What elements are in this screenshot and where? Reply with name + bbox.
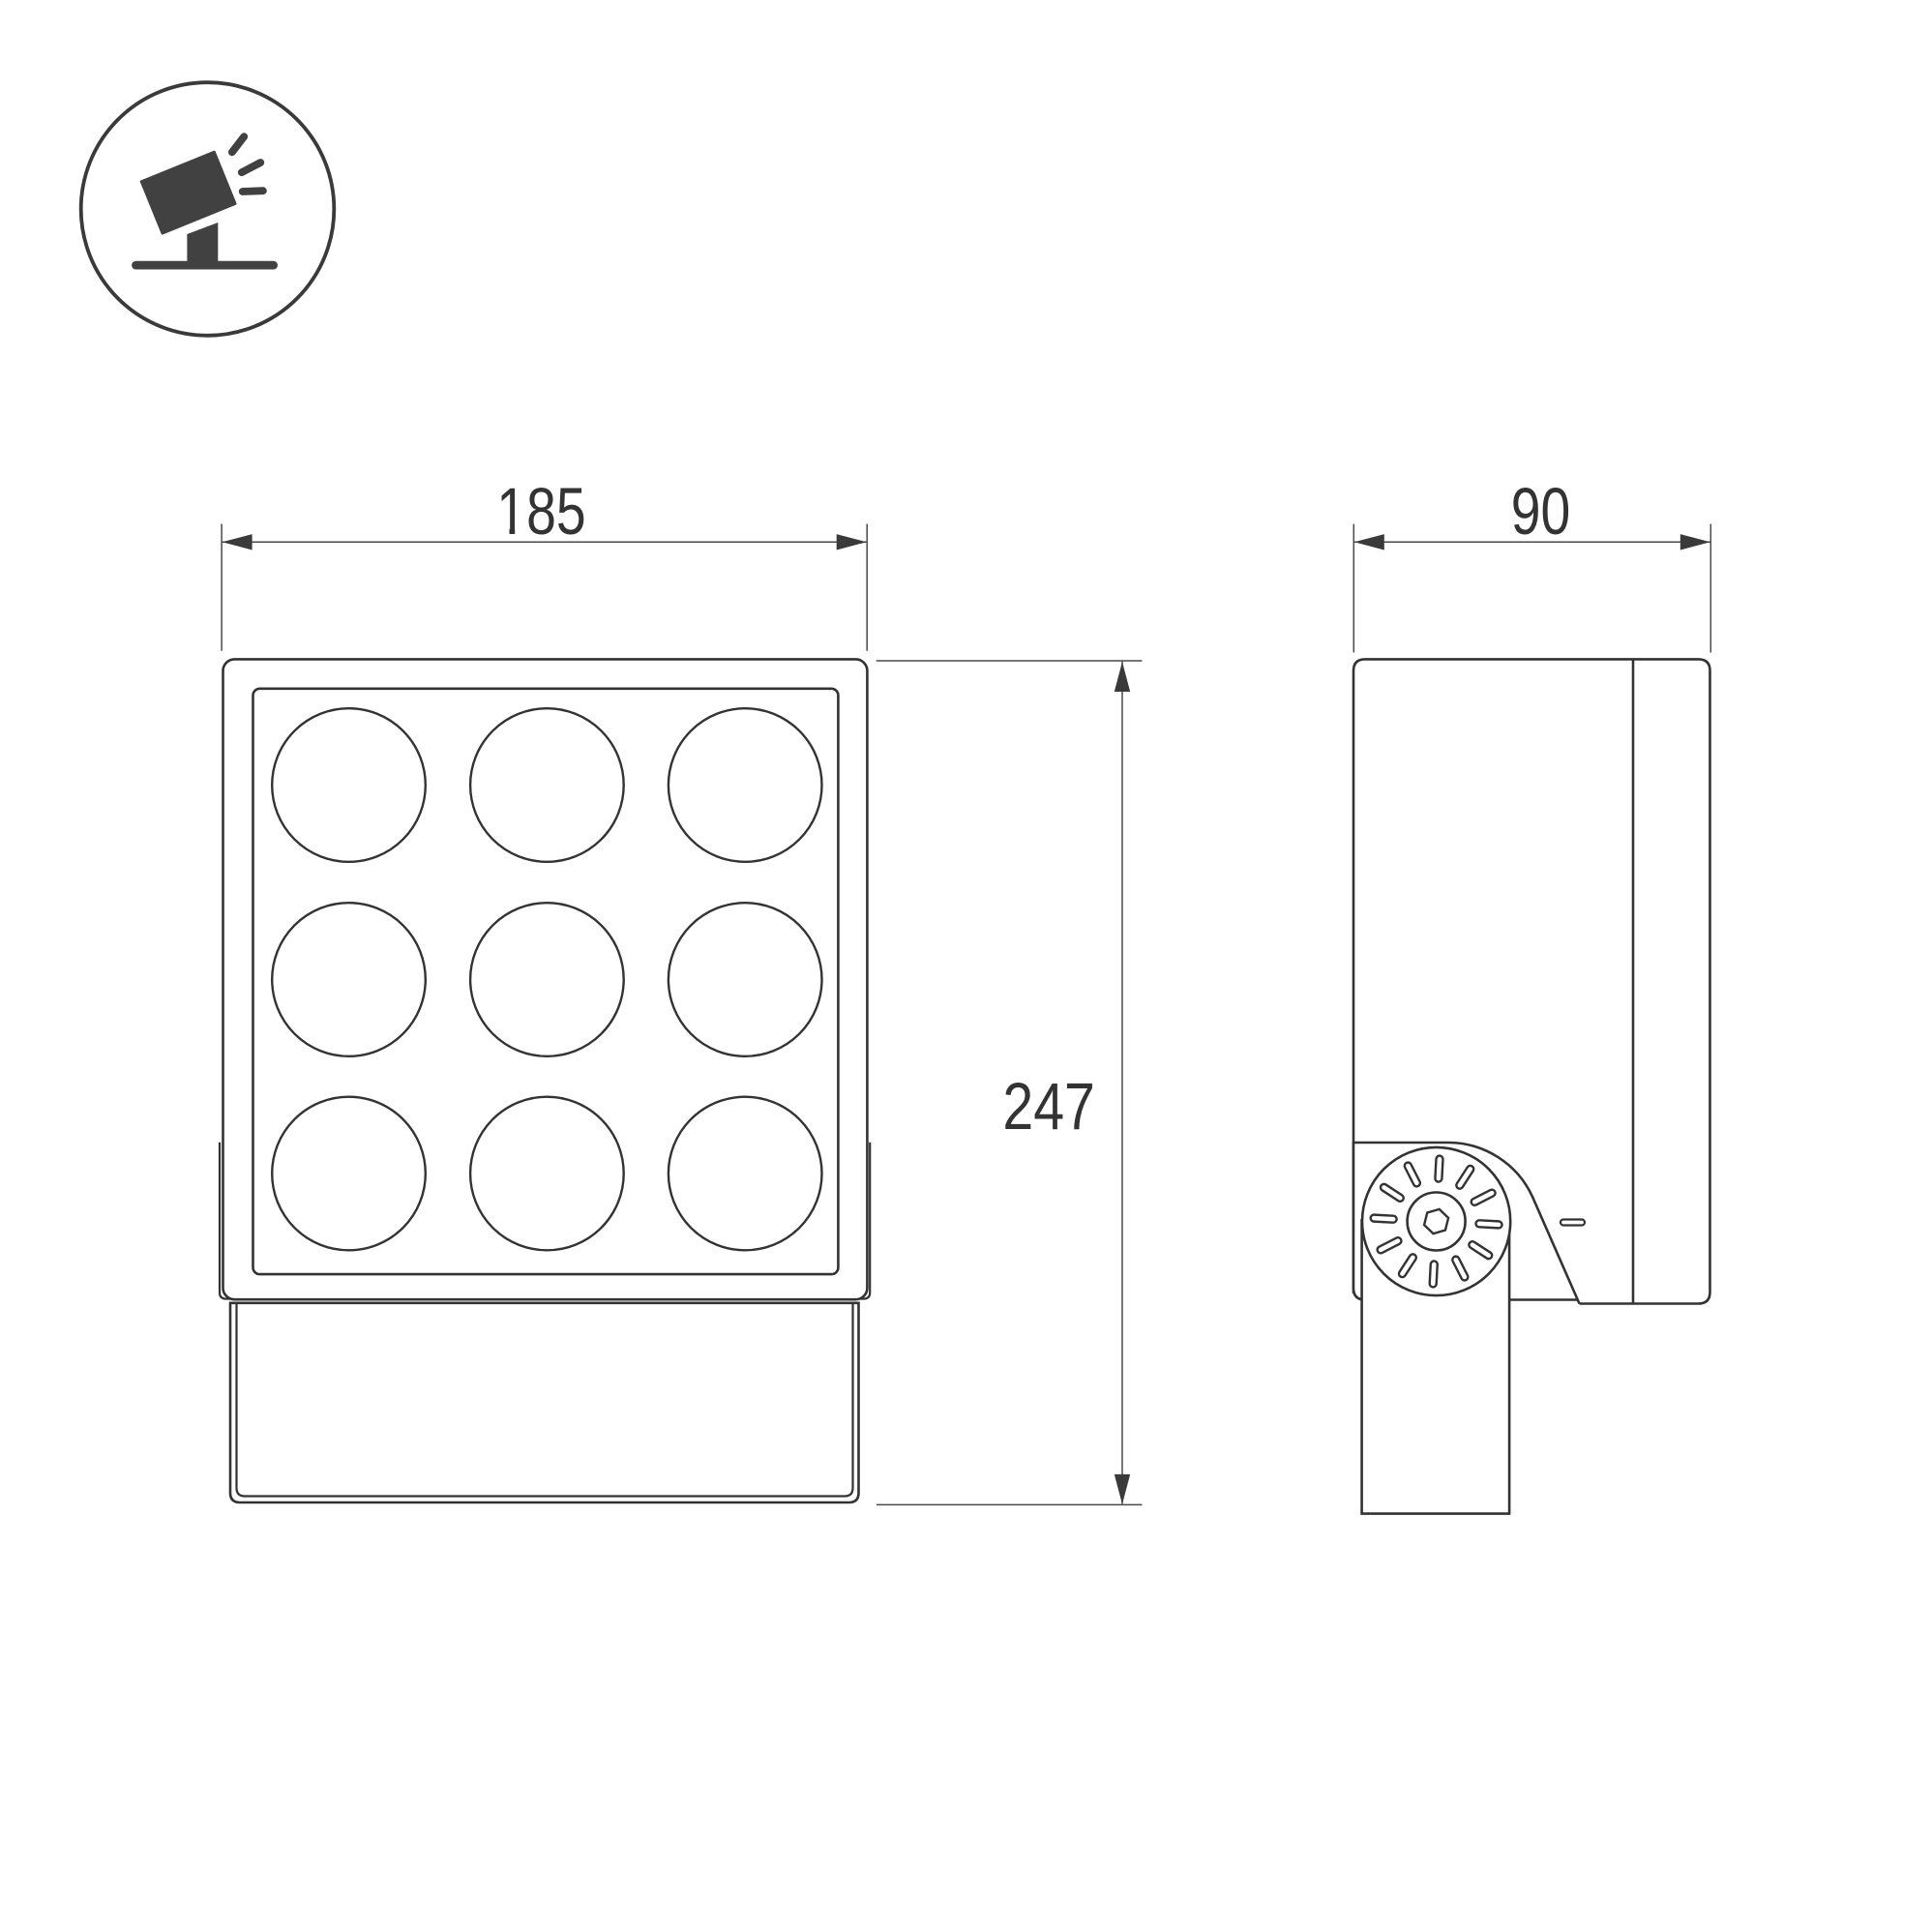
svg-text:90: 90: [1511, 474, 1571, 549]
svg-text:185: 185: [496, 474, 585, 549]
svg-text:247: 247: [1002, 1069, 1095, 1144]
